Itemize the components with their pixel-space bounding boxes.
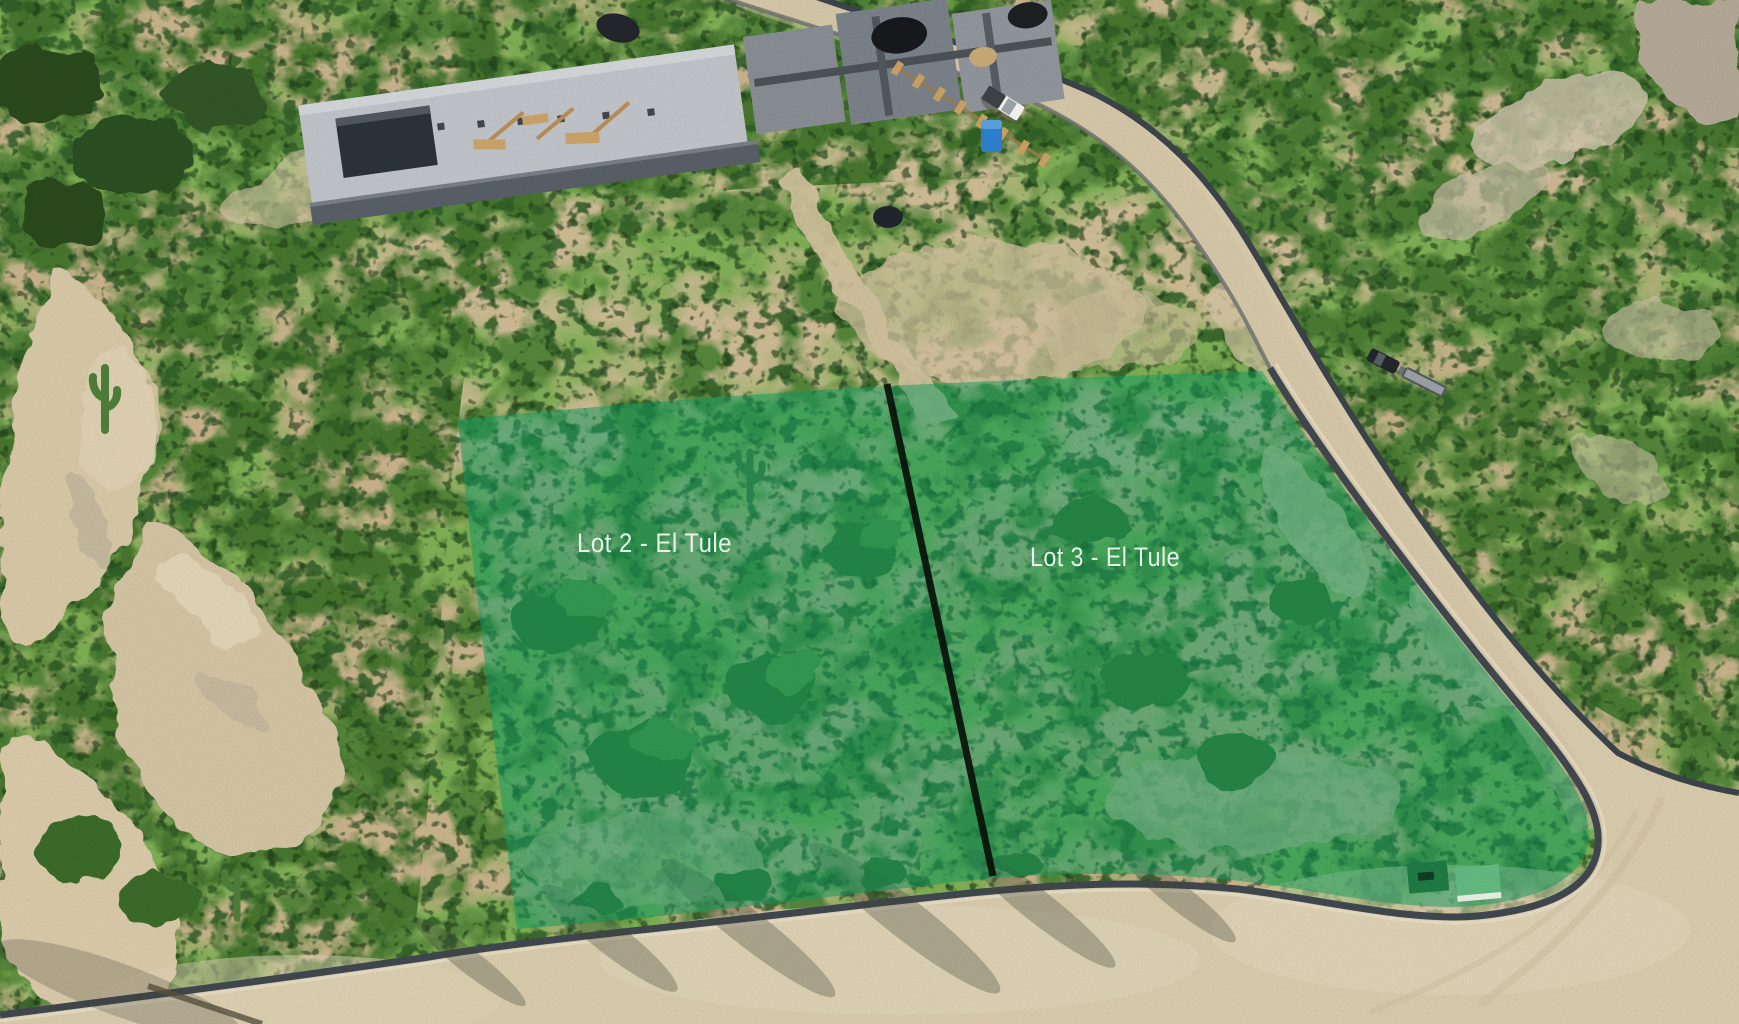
photo-grain xyxy=(0,0,1739,1024)
aerial-photo: Lot 2 - El Tule Lot 3 - El Tule xyxy=(0,0,1739,1024)
